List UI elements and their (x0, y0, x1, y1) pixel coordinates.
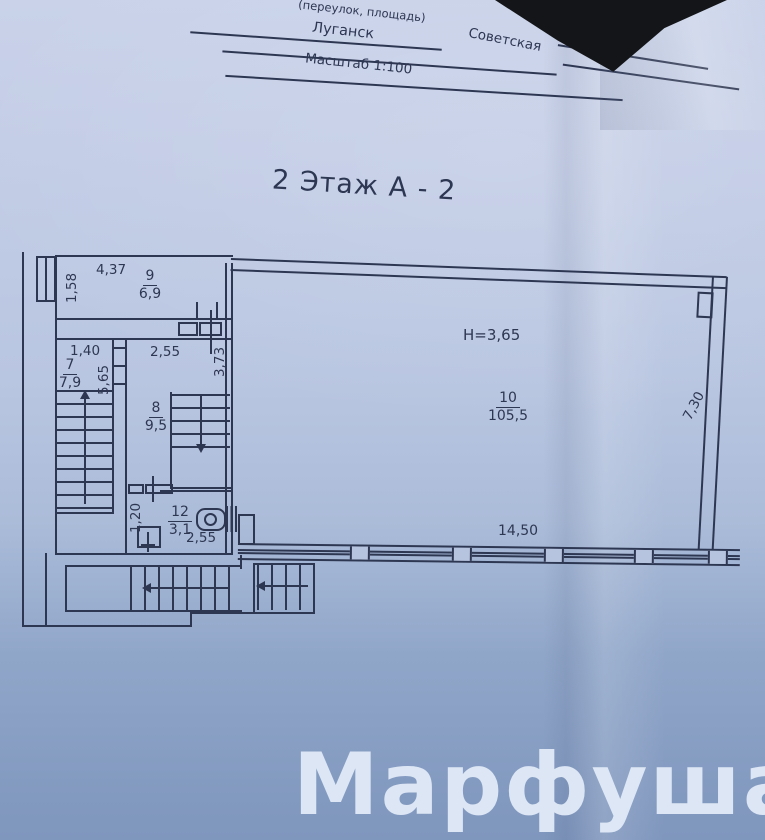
stair-edge (313, 563, 315, 612)
window-symbol (238, 549, 740, 560)
staircase-exterior (257, 565, 313, 610)
window-symbol (36, 258, 56, 302)
direction-arrow (84, 398, 86, 504)
city-value: Луганск (311, 20, 375, 42)
door-lintel (128, 484, 144, 494)
room-label-8: 8 9,5 (136, 400, 176, 435)
stair-edge (65, 610, 242, 612)
outer-wall (22, 252, 24, 627)
window-symbol (36, 300, 56, 302)
room-area: 105,5 (488, 408, 528, 425)
wall (55, 338, 127, 340)
door-lintel (145, 484, 173, 494)
wall-tick (112, 347, 127, 349)
outer-wall (190, 612, 192, 627)
room-number: 10 (496, 390, 520, 408)
paper-sheet: (переулок, площадь) Луганск Советская Ма… (0, 0, 765, 840)
stair-landing-line (170, 487, 233, 489)
stair-landing-line (57, 512, 114, 514)
window-symbol (36, 256, 56, 258)
dimension-label: 1,58 (64, 266, 80, 310)
wall-pier (452, 548, 472, 561)
door-lintel (178, 322, 198, 336)
wall (55, 255, 233, 257)
arrow-down-icon (196, 444, 206, 453)
dimension-label: 14,50 (498, 523, 538, 539)
pilaster (238, 514, 255, 545)
direction-arrow (200, 396, 202, 446)
dimension-label: 4,37 (96, 262, 126, 278)
stair-edge (240, 555, 242, 569)
wall-tick (112, 383, 127, 385)
direction-arrow (262, 585, 308, 587)
toilet-icon (204, 513, 217, 526)
photo-of-floor-plan: { "header": { "field_label": "(переулок,… (0, 0, 765, 840)
ceiling-height-label: H=3,65 (463, 326, 520, 344)
scale-label: Масштаб 1:100 (304, 50, 412, 77)
arrow-left-icon (256, 581, 265, 591)
wall (231, 258, 727, 289)
form-underline (225, 75, 622, 101)
outer-wall (22, 625, 192, 627)
stair-edge (253, 563, 255, 612)
stair-outer-wall (45, 553, 47, 627)
wall (125, 338, 127, 555)
arrow-left-icon (142, 583, 151, 593)
wall (55, 318, 233, 320)
stair-edge (65, 565, 67, 612)
dimension-label: 2,55 (186, 530, 216, 546)
room-number: 7 (63, 357, 78, 375)
room-label-7: 7 7,9 (52, 357, 88, 392)
floor-title: 2 Этаж А - 2 (271, 164, 457, 206)
room-label-10: 10 105,5 (480, 390, 536, 425)
pilaster (696, 292, 713, 319)
watermark: Марфуша (293, 742, 765, 828)
room-number: 9 (143, 268, 158, 286)
street-value: Советская (467, 25, 542, 55)
room-area: 7,9 (59, 375, 81, 392)
wall-tick (112, 365, 127, 367)
wall-pier (350, 546, 370, 559)
door-jamb (196, 302, 198, 318)
room-area: 6,9 (139, 286, 161, 303)
room-area: 9,5 (145, 418, 167, 435)
sink-icon (141, 544, 155, 546)
wall (225, 263, 233, 555)
wall-pier (708, 551, 728, 564)
outer-wall (190, 612, 315, 614)
door-jamb (152, 476, 154, 502)
door-jamb (216, 302, 218, 318)
wall-pier (634, 550, 654, 563)
room-number: 12 (168, 504, 192, 522)
sink-icon (147, 532, 149, 552)
wall (55, 553, 233, 555)
direction-arrow (150, 587, 230, 589)
dimension-label: 5,65 (96, 358, 112, 402)
room-number: 8 (149, 400, 164, 418)
room-label-9: 9 6,9 (128, 268, 172, 303)
form-underline (563, 64, 740, 91)
dimension-label: 2,55 (150, 344, 180, 360)
wall-pier (544, 549, 564, 562)
